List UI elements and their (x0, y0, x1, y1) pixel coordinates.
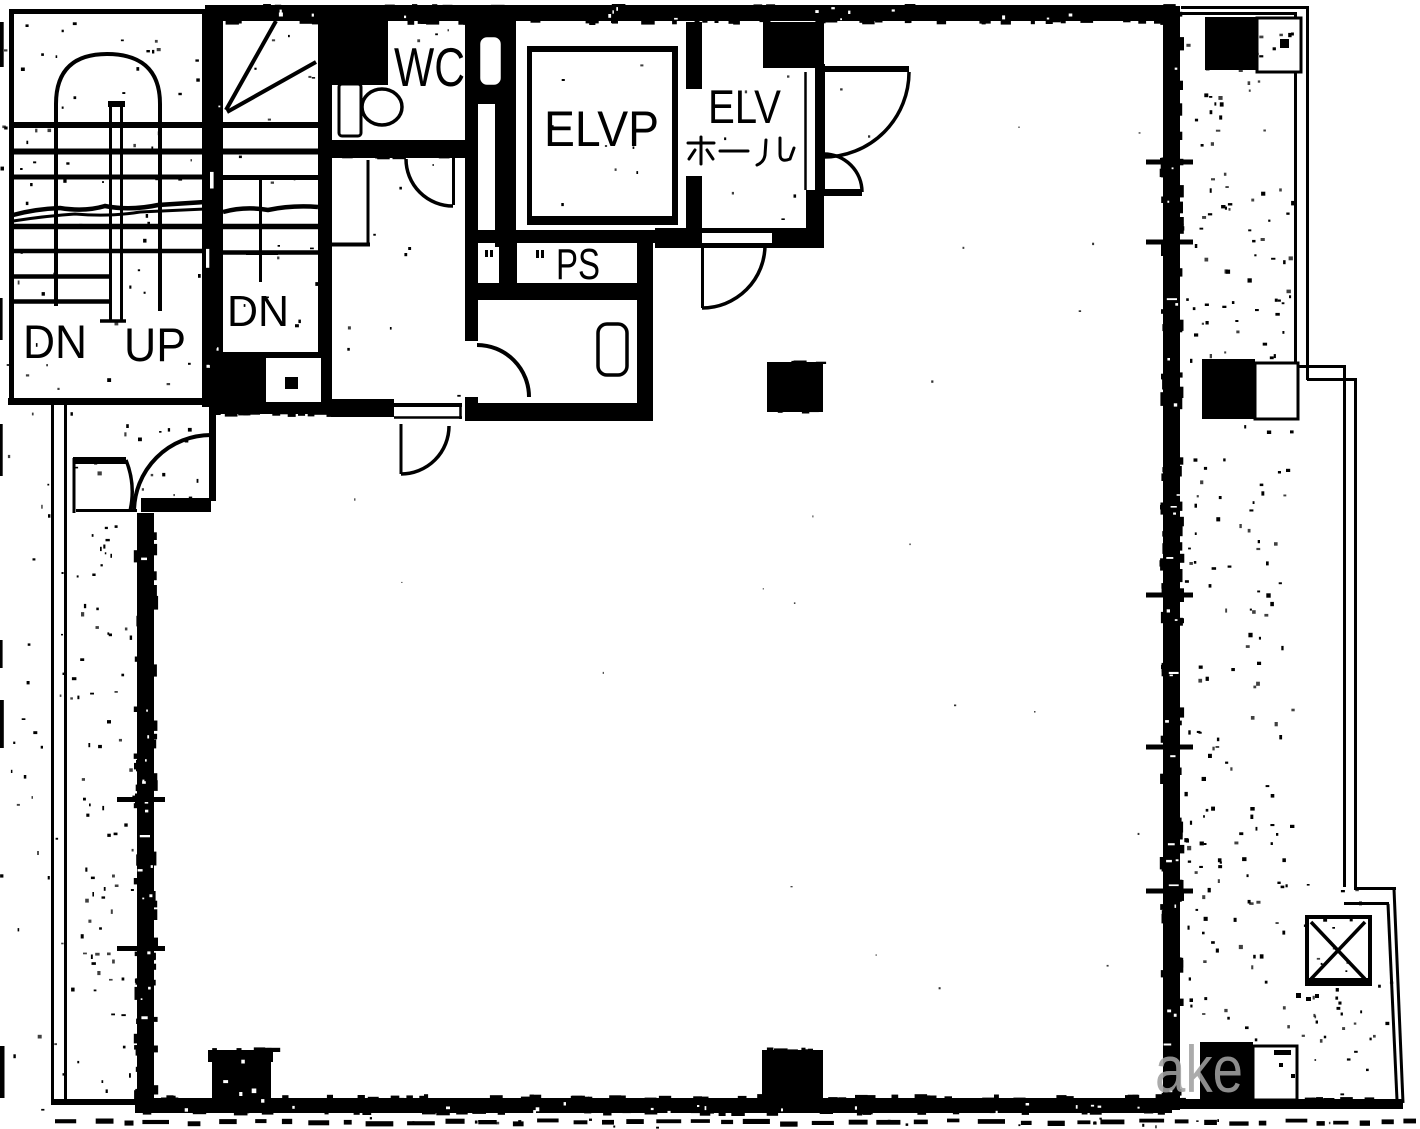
svg-text:UP: UP (124, 318, 186, 371)
svg-text:ELV: ELV (708, 80, 782, 133)
svg-text:DN: DN (23, 315, 87, 368)
svg-text:DN: DN (227, 287, 289, 336)
svg-text:ELVP: ELVP (544, 101, 659, 157)
svg-text:ake: ake (1155, 1032, 1243, 1106)
svg-text:WC: WC (394, 36, 465, 98)
svg-text:PS: PS (556, 240, 600, 289)
